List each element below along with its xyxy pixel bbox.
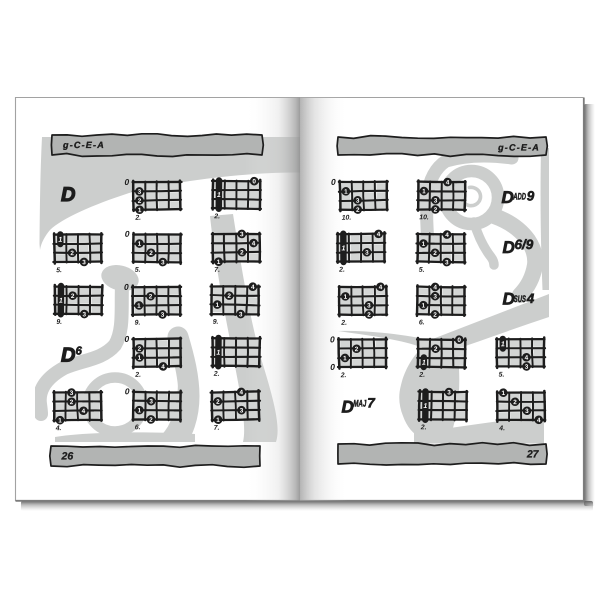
svg-text:1: 1 [344,294,348,301]
svg-text:2: 2 [71,293,75,300]
svg-text:0: 0 [124,177,129,187]
svg-text:1: 1 [216,302,220,309]
svg-text:1: 1 [501,390,505,397]
svg-text:4: 4 [537,417,541,424]
svg-text:27: 27 [526,449,540,461]
svg-text:2: 2 [227,293,231,300]
svg-text:9: 9 [527,189,535,204]
svg-text:0: 0 [457,337,461,344]
svg-text:3: 3 [365,250,369,257]
svg-text:g-C-E-A: g-C-E-A [497,142,540,152]
svg-text:1: 1 [58,237,62,244]
svg-text:3: 3 [367,303,371,310]
svg-text:1: 1 [422,360,426,367]
svg-text:0: 0 [330,334,335,344]
svg-text:MAJ: MAJ [353,399,367,410]
svg-text:2: 2 [434,207,438,214]
svg-text:SUS: SUS [514,294,527,305]
svg-text:10.: 10. [342,215,352,222]
svg-text:1: 1 [216,417,220,424]
svg-text:6: 6 [76,346,83,358]
svg-text:4: 4 [82,408,86,415]
svg-text:ADD: ADD [513,192,527,203]
svg-text:6.: 6. [135,424,141,431]
svg-text:2: 2 [513,399,517,406]
svg-text:4: 4 [379,284,383,291]
svg-text:2: 2 [356,207,360,214]
svg-text:2.: 2. [418,372,425,379]
svg-text:2.: 2. [213,371,220,378]
svg-text:3: 3 [82,259,86,266]
svg-text:2: 2 [138,346,142,353]
svg-text:4: 4 [433,284,437,291]
svg-text:4: 4 [377,231,381,238]
svg-text:2.: 2. [340,320,347,327]
svg-text:1: 1 [344,189,348,196]
svg-text:3: 3 [447,389,451,396]
svg-text:3: 3 [525,364,529,371]
svg-text:4: 4 [161,364,165,371]
svg-text:1: 1 [341,245,345,252]
svg-text:0: 0 [125,386,130,396]
svg-text:0: 0 [330,362,335,372]
svg-text:2: 2 [216,399,220,406]
svg-text:g-C-E-A: g-C-E-A [62,140,105,150]
svg-text:2: 2 [149,417,153,424]
svg-text:9.: 9. [213,319,219,326]
svg-text:4: 4 [252,240,256,247]
svg-text:2.: 2. [340,372,347,379]
svg-text:3: 3 [70,390,74,397]
svg-text:1: 1 [137,303,141,310]
svg-text:1: 1 [217,259,221,266]
svg-text:0: 0 [125,229,130,239]
svg-text:2: 2 [433,250,437,257]
svg-text:3: 3 [82,311,86,318]
svg-text:1: 1 [138,355,142,362]
svg-text:4: 4 [446,179,450,186]
svg-text:1: 1 [501,341,505,348]
svg-text:3: 3 [240,231,244,238]
svg-text:2: 2 [138,198,142,205]
svg-text:2: 2 [70,250,74,257]
svg-text:2: 2 [240,250,244,257]
svg-text:6.: 6. [419,319,425,326]
svg-text:3: 3 [239,311,243,318]
svg-text:3: 3 [356,198,360,205]
svg-text:3: 3 [525,408,529,415]
svg-text:3: 3 [434,198,438,205]
svg-text:3: 3 [138,189,142,196]
svg-text:26: 26 [61,451,74,463]
svg-text:2: 2 [434,346,438,353]
svg-text:1: 1 [423,403,427,410]
svg-text:1: 1 [217,192,221,199]
svg-text:D: D [61,184,75,206]
svg-text:3: 3 [161,312,165,319]
svg-text:1: 1 [138,407,142,414]
svg-text:4.: 4. [498,425,505,432]
svg-text:4: 4 [239,389,243,396]
svg-text:2.: 2. [134,372,141,379]
svg-text:0: 0 [124,282,129,292]
svg-text:9.: 9. [56,319,62,326]
svg-text:9.: 9. [135,320,141,327]
svg-text:1: 1 [422,302,426,309]
svg-text:4: 4 [251,284,255,291]
svg-text:0: 0 [124,334,129,344]
svg-text:10.: 10. [419,214,429,221]
svg-text:5.: 5. [499,372,505,379]
svg-text:2.: 2. [134,215,141,222]
svg-text:D: D [342,398,354,417]
svg-text:4: 4 [525,355,529,362]
svg-text:2: 2 [149,294,153,301]
svg-text:3: 3 [445,259,449,266]
svg-text:6/9: 6/9 [515,237,534,252]
svg-text:2.: 2. [338,267,345,274]
svg-text:D: D [502,188,514,207]
svg-text:D: D [503,238,515,257]
svg-text:3: 3 [240,408,244,415]
svg-text:2.: 2. [420,424,427,431]
svg-text:4.: 4. [55,425,62,432]
svg-text:1: 1 [422,241,426,248]
svg-text:5.: 5. [419,267,425,274]
svg-text:0: 0 [252,178,256,185]
svg-text:1: 1 [59,298,63,305]
svg-text:1: 1 [216,350,220,357]
svg-text:1: 1 [138,207,142,214]
svg-text:2: 2 [355,346,359,353]
svg-text:4: 4 [445,232,449,239]
svg-text:1: 1 [422,188,426,195]
svg-text:7.: 7. [214,267,220,274]
svg-text:0: 0 [331,177,336,187]
svg-text:7.: 7. [214,425,220,432]
svg-text:2: 2 [367,312,371,319]
svg-text:2: 2 [70,399,74,406]
svg-text:3: 3 [161,259,165,266]
svg-text:5.: 5. [135,267,141,274]
svg-text:2: 2 [149,250,153,257]
svg-text:1: 1 [58,417,62,424]
svg-text:D: D [61,344,75,366]
svg-text:3: 3 [433,293,437,300]
svg-text:2.: 2. [213,213,220,220]
svg-text:1: 1 [138,241,142,248]
svg-text:4: 4 [526,291,535,306]
svg-text:2: 2 [433,312,437,319]
svg-text:3: 3 [149,398,153,405]
svg-text:5.: 5. [56,267,62,274]
svg-text:1: 1 [343,355,347,362]
